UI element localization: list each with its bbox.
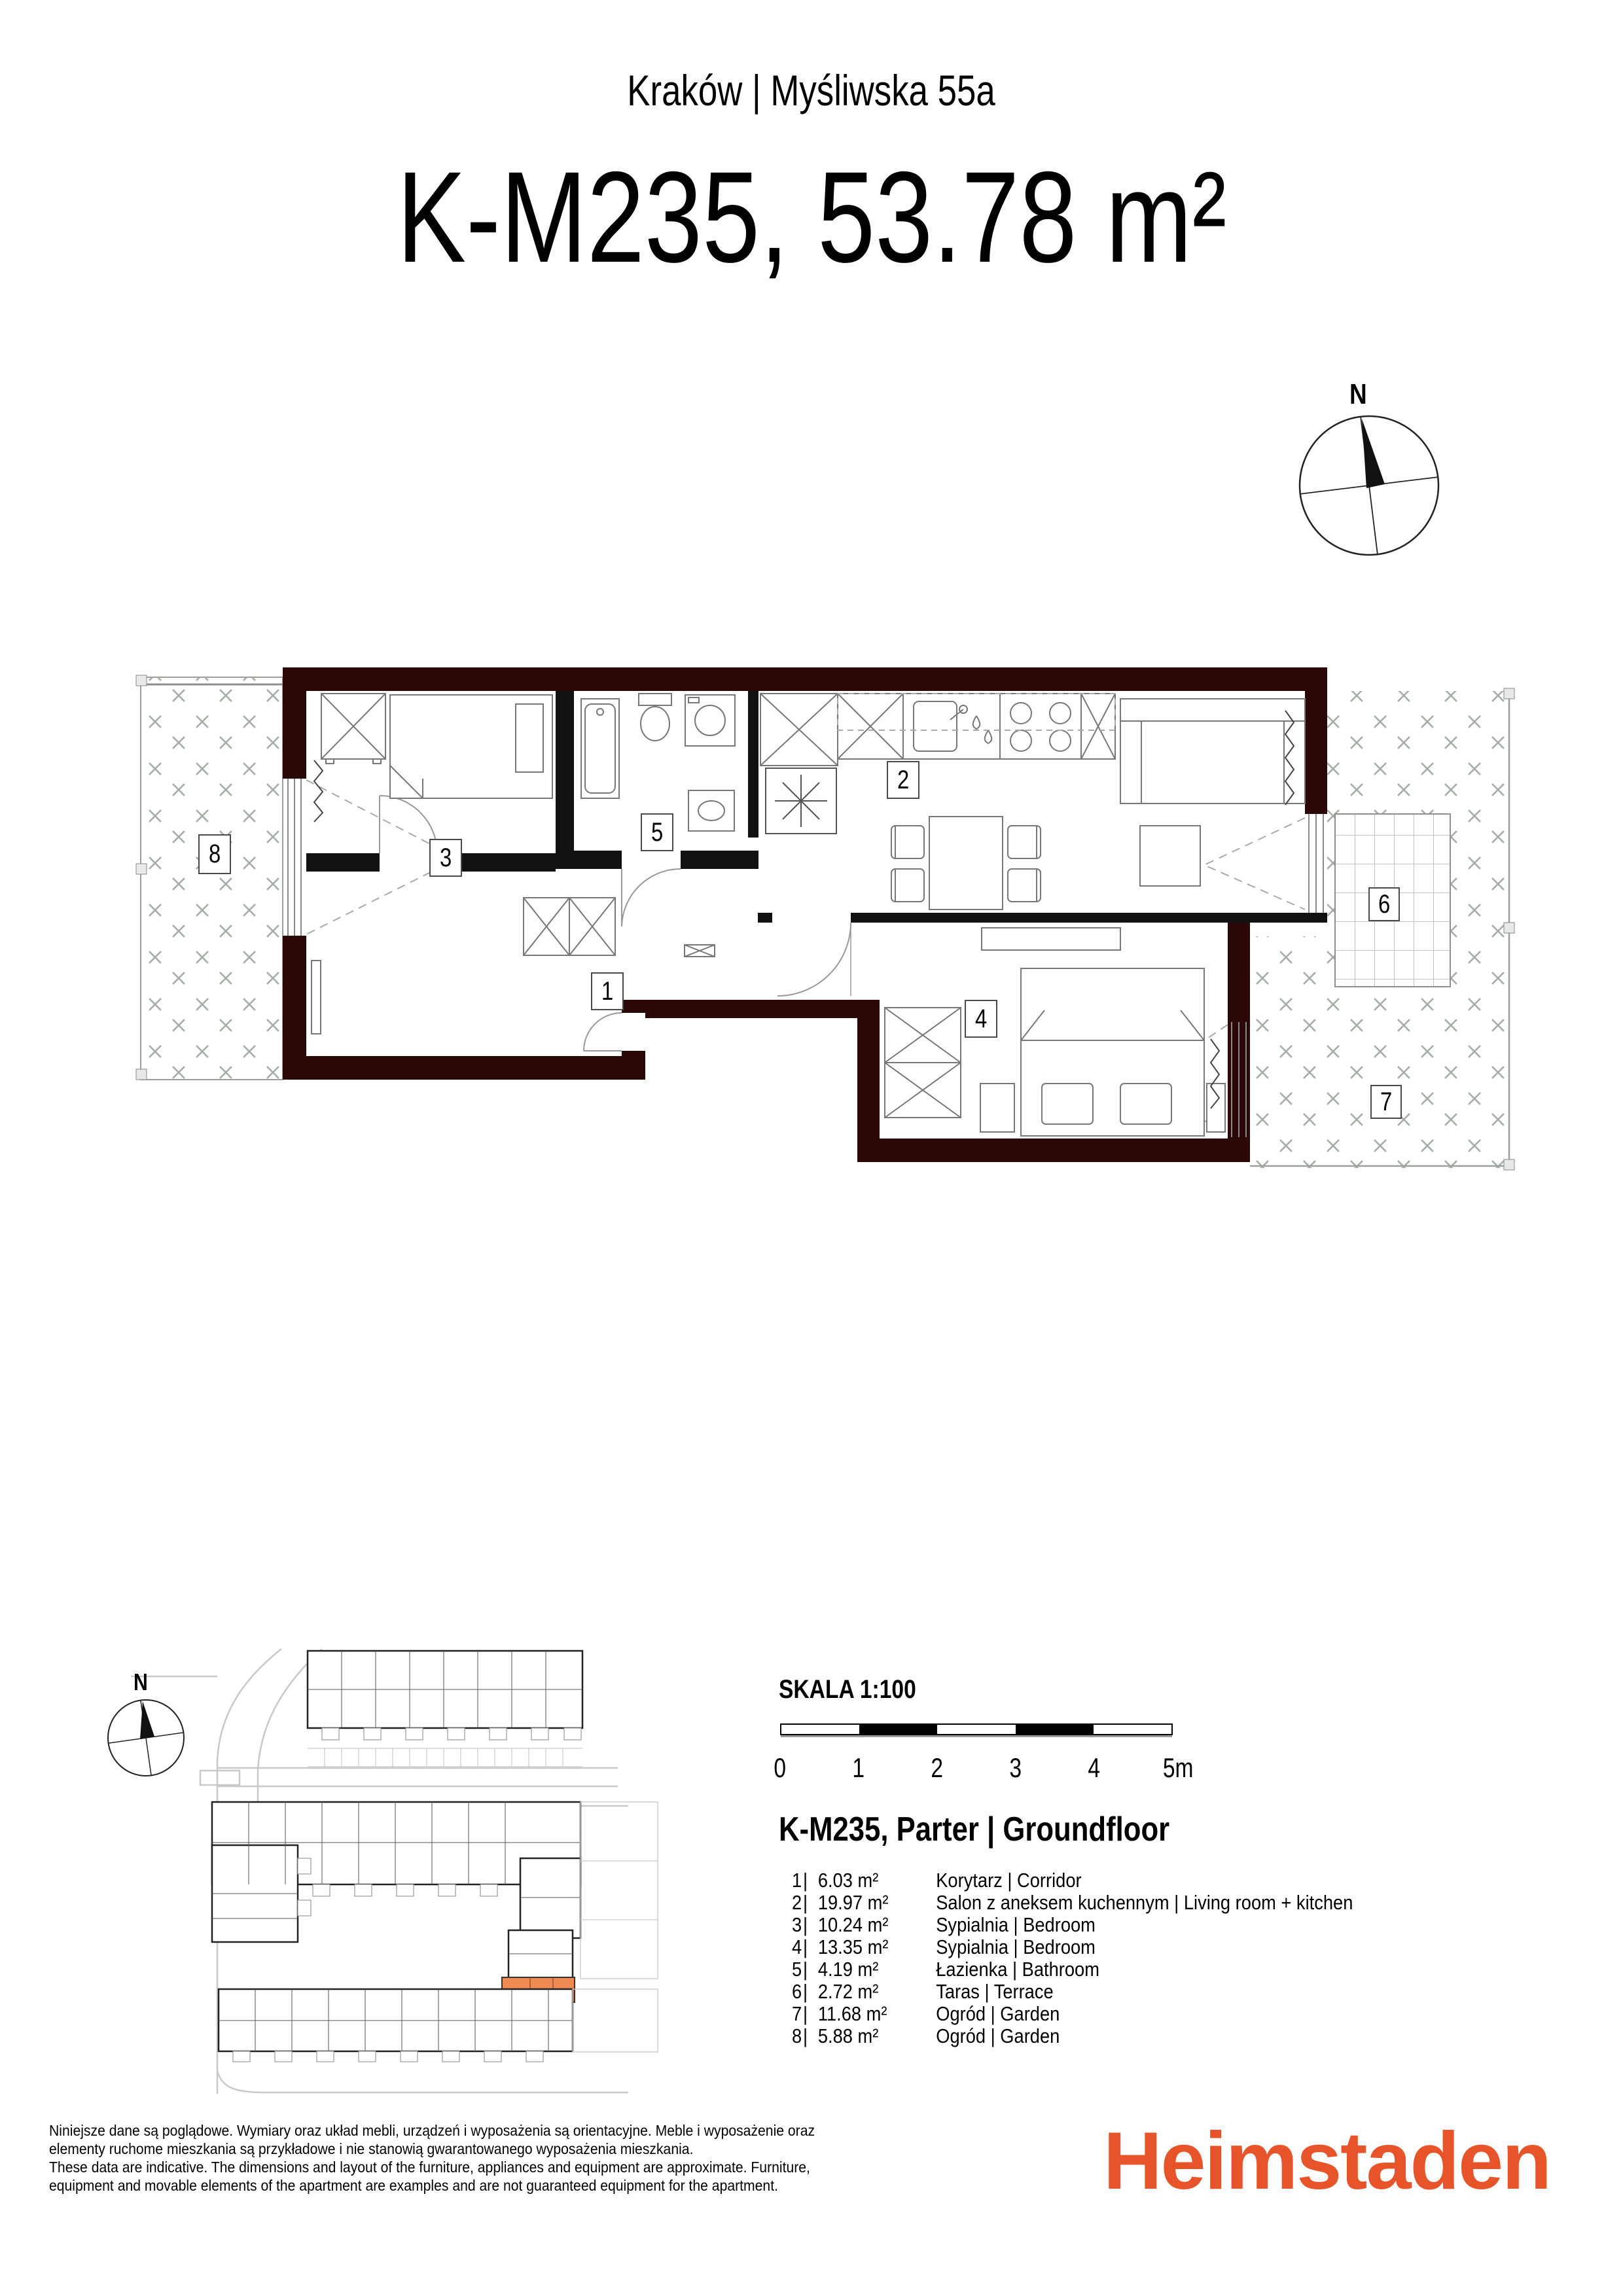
- kitchen-sink-icon: [914, 701, 967, 751]
- nightstand-icon: [980, 1084, 1014, 1132]
- compass-north-label: N: [1349, 378, 1370, 411]
- disclaimer-line: These data are indicative. The dimension…: [49, 2158, 815, 2176]
- legend-room-name: Ogród | Garden: [936, 2002, 1060, 2026]
- compass-icon: [1292, 408, 1446, 563]
- radiator-icon: [312, 961, 321, 1034]
- site-middle-building: [212, 1802, 658, 1979]
- scale-bar-segment: [859, 1725, 937, 1734]
- plan-room-label-8: 8: [198, 834, 231, 874]
- double-wardrobe-icon: [885, 1008, 961, 1118]
- bathroom-fixtures: [581, 694, 735, 831]
- legend-row: 4| 13.35 m² Sypialnia | Bedroom: [779, 1935, 1353, 1958]
- coffee-table-icon: [1140, 826, 1200, 886]
- floorplan-sheet: { "header": { "location": "Kraków | Myśl…: [0, 0, 1623, 2296]
- legend-room-name: Sypialnia | Bedroom: [936, 1913, 1096, 1937]
- legend-room-number: 1: [779, 1869, 802, 1892]
- legend-row: 3| 10.24 m² Sypialnia | Bedroom: [779, 1913, 1353, 1935]
- double-bed-icon: [1021, 968, 1204, 1136]
- legend-room-number: 2: [779, 1891, 802, 1915]
- disclaimer-line: equipment and movable elements of the ap…: [49, 2176, 815, 2195]
- site-bottom-building: [219, 1989, 658, 2062]
- scale-label: SKALA 1:100: [779, 1675, 942, 1704]
- legend-room-number: 3: [779, 1913, 802, 1937]
- scale-bar-segment: [937, 1725, 1015, 1734]
- tv-bench-icon: [982, 928, 1120, 950]
- site-top-building: [308, 1651, 582, 1767]
- tall-cabinet-icon: [760, 694, 838, 766]
- legend-row: 1| 6.03 m² Korytarz | Corridor: [779, 1869, 1353, 1891]
- legend-room-name: Łazienka | Bathroom: [936, 1958, 1099, 1981]
- nightstand-icon-2: [1207, 1084, 1225, 1132]
- washer-icon: [685, 695, 735, 746]
- legend-row: 7| 11.68 m² Ogród | Garden: [779, 2002, 1353, 2024]
- legend-room-name: Sypialnia | Bedroom: [936, 1935, 1096, 1959]
- scale-bar-segment: [1094, 1725, 1171, 1734]
- room-legend: 1| 6.03 m² Korytarz | Corridor 2| 19.97 …: [779, 1869, 1353, 2047]
- wardrobe-icon: [321, 694, 385, 764]
- site-compass-north-label: N: [134, 1669, 151, 1696]
- scale-tick-3: 3: [990, 1752, 1042, 1784]
- scale-tick-5: 5m: [1152, 1752, 1204, 1784]
- disclaimer-line: elementy ruchome mieszkania są przykłado…: [49, 2140, 815, 2158]
- toilet-icon: [639, 694, 671, 741]
- legend-room-name: Salon z aneksem kuchennym | Living room …: [936, 1891, 1353, 1915]
- floor-plan-drawing: [136, 667, 1514, 1170]
- legend-room-name: Ogród | Garden: [936, 2024, 1060, 2048]
- site-plan-drawing: [103, 1649, 658, 2094]
- single-bed-icon: [390, 695, 552, 798]
- scale-bar-segment: [1016, 1725, 1094, 1734]
- legend-row: 2| 19.97 m² Salon z aneksem kuchennym | …: [779, 1891, 1353, 1913]
- scale-tick-1: 1: [832, 1752, 885, 1784]
- scale-tick-2: 2: [911, 1752, 963, 1784]
- legend-room-number: 8: [779, 2024, 802, 2048]
- plan-room-label-1: 1: [591, 972, 624, 1010]
- plan-room-label-5: 5: [641, 813, 673, 851]
- compass-needle: [1362, 419, 1385, 488]
- floor-heading: K-M235, Parter | Groundfloor: [779, 1810, 1244, 1849]
- parking-strip: [308, 1748, 582, 1767]
- corridor-furniture: [524, 898, 715, 957]
- legend-room-area: 6.03 m²: [818, 1869, 936, 1892]
- disclaimer-text: Niniejsze dane są poglądowe. Wymiary ora…: [49, 2121, 815, 2195]
- legend-room-area: 19.97 m²: [818, 1891, 936, 1915]
- hall-wardrobe-icon: [524, 898, 615, 955]
- entry-door-gap: [622, 1013, 645, 1051]
- legend-room-area: 2.72 m²: [818, 1980, 936, 2004]
- shower-tub-icon: [581, 699, 619, 798]
- site-compass-icon: [103, 1695, 188, 1780]
- sofa-icon: [1120, 699, 1305, 804]
- sink-icon: [688, 790, 734, 831]
- legend-room-area: 13.35 m²: [818, 1935, 936, 1959]
- legend-room-name: Taras | Terrace: [936, 1980, 1053, 2004]
- legend-room-area: 11.68 m²: [818, 2002, 936, 2026]
- plan-room-label-4: 4: [965, 1000, 997, 1038]
- disclaimer-line: Niniejsze dane są poglądowe. Wymiary ora…: [49, 2121, 815, 2140]
- legend-row: 5| 4.19 m² Łazienka | Bathroom: [779, 1958, 1353, 1980]
- dining-table-icon: [929, 817, 1003, 910]
- bedroom4-furniture: [885, 928, 1225, 1136]
- scale-tick-4: 4: [1068, 1752, 1120, 1784]
- heimstaden-logo: Heimstaden: [1103, 2115, 1550, 2208]
- plan-room-label-6: 6: [1368, 887, 1400, 921]
- plan-room-label-3: 3: [429, 839, 462, 877]
- legend-row: 8| 5.88 m² Ogród | Garden: [779, 2024, 1353, 2047]
- legend-room-area: 4.19 m²: [818, 1958, 936, 1981]
- living-furniture: [1120, 699, 1305, 886]
- legend-room-number: 6: [779, 1980, 802, 2004]
- hob-icon: [1010, 703, 1071, 751]
- kitchen-units: [760, 694, 1115, 834]
- legend-room-number: 5: [779, 1958, 802, 1981]
- scale-bar-segment: [781, 1725, 859, 1734]
- legend-room-name: Korytarz | Corridor: [936, 1869, 1081, 1892]
- legend-row: 6| 2.72 m² Taras | Terrace: [779, 1980, 1353, 2002]
- garden-8-area: [136, 675, 283, 1080]
- legend-room-number: 7: [779, 2002, 802, 2026]
- plan-room-label-2: 2: [887, 761, 919, 799]
- legend-room-area: 5.88 m²: [818, 2024, 936, 2048]
- plan-room-label-7: 7: [1370, 1085, 1402, 1119]
- legend-room-number: 4: [779, 1935, 802, 1959]
- scale-tick-0: 0: [754, 1752, 806, 1784]
- scale-bar: [780, 1723, 1173, 1735]
- shoe-cabinet-icon: [685, 945, 715, 957]
- dining-set: [891, 817, 1041, 910]
- legend-room-area: 10.24 m²: [818, 1913, 936, 1937]
- boiler-star-icon: [766, 768, 836, 834]
